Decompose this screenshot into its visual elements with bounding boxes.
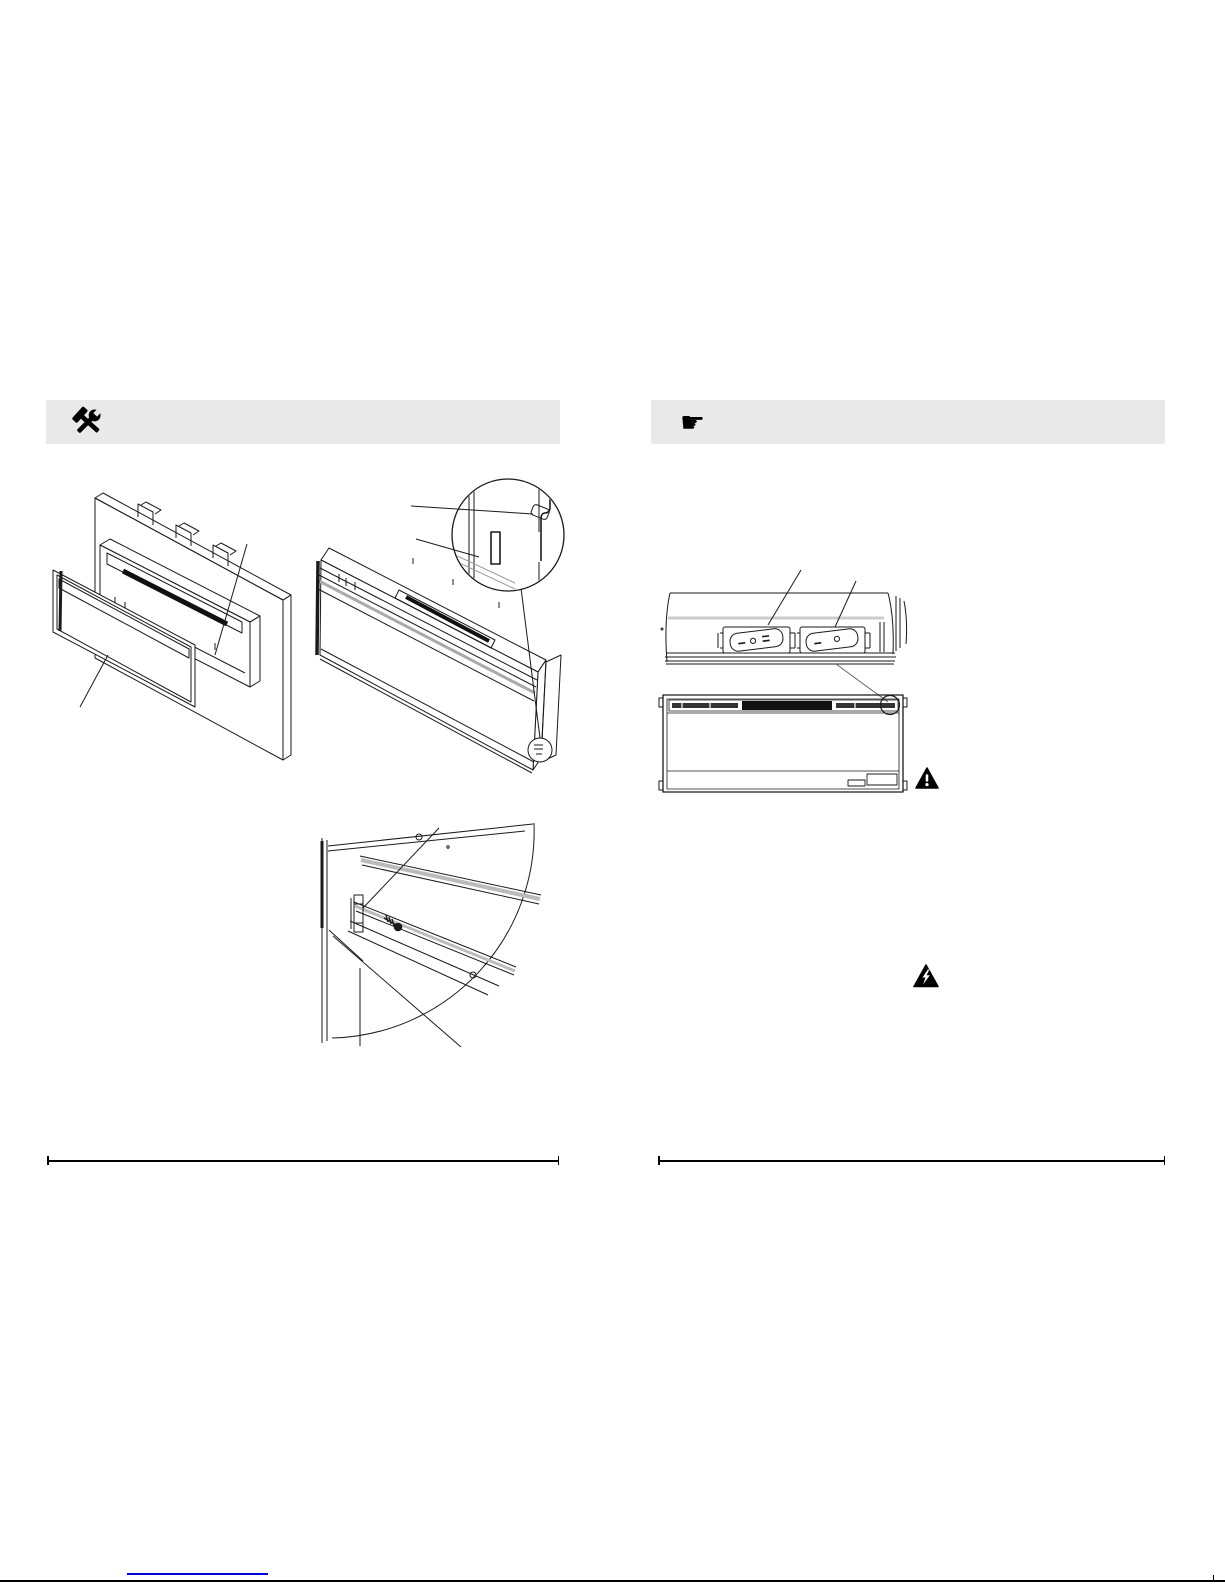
left-section-header-bar (46, 400, 560, 444)
flame-switch-drawing (718, 627, 795, 653)
unit-detail-circle-figure (303, 462, 573, 784)
page-bottom-rule (0, 1580, 1225, 1582)
footer-link-underline[interactable] (127, 1573, 268, 1575)
right-section-header-bar (651, 400, 1165, 444)
exploded-wall-mount-figure (45, 475, 295, 775)
tools-icon (71, 405, 105, 439)
left-column-footer-rule (47, 1160, 559, 1162)
manual-page: ☛ (0, 0, 1225, 1585)
switch-panel-and-front-view-figure (648, 556, 948, 800)
warning-lightning-triangle-icon (912, 962, 940, 990)
pointing-hand-icon: ☛ (680, 409, 705, 437)
power-switch-drawing (797, 627, 870, 653)
front-view-drawing (659, 695, 907, 792)
right-column-footer-rule (658, 1160, 1165, 1162)
bracket-screw-detail-figure (303, 803, 568, 1055)
warning-exclamation-triangle-icon (915, 766, 939, 791)
